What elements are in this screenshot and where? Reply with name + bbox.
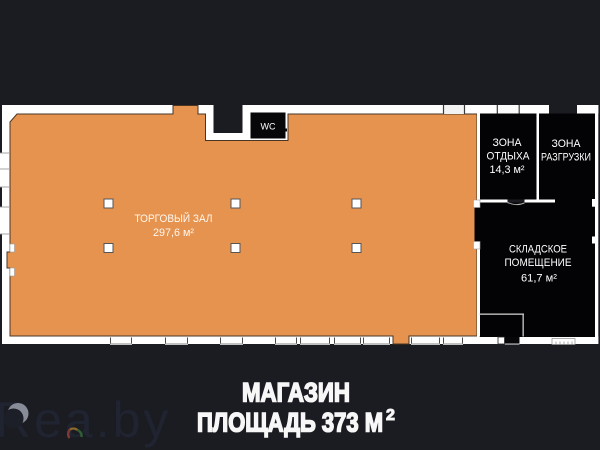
svg-text:ТОРГОВЫЙ ЗАЛ: ТОРГОВЫЙ ЗАЛ (135, 212, 213, 225)
svg-text:14,3 м²: 14,3 м² (490, 164, 525, 176)
svg-text:РАЗГРУЗКИ: РАЗГРУЗКИ (541, 152, 591, 164)
svg-text:ПОМЕЩЕНИЕ: ПОМЕЩЕНИЕ (505, 257, 572, 269)
svg-text:ЗОНА: ЗОНА (493, 137, 523, 149)
svg-text:СКЛАДСКОЕ: СКЛАДСКОЕ (509, 244, 567, 256)
svg-text:ПЛОЩАДЬ 373 М: ПЛОЩАДЬ 373 М (197, 408, 383, 438)
svg-text:2: 2 (386, 407, 395, 424)
svg-text:ОТДЫХА: ОТДЫХА (487, 151, 531, 163)
svg-text:WC: WC (261, 122, 276, 132)
svg-text:МАГАЗИН: МАГАЗИН (242, 378, 350, 408)
svg-text:ЗОНА: ЗОНА (552, 138, 582, 150)
svg-text:297,6 м²: 297,6 м² (153, 227, 194, 239)
svg-text:61,7 м²: 61,7 м² (521, 273, 557, 285)
